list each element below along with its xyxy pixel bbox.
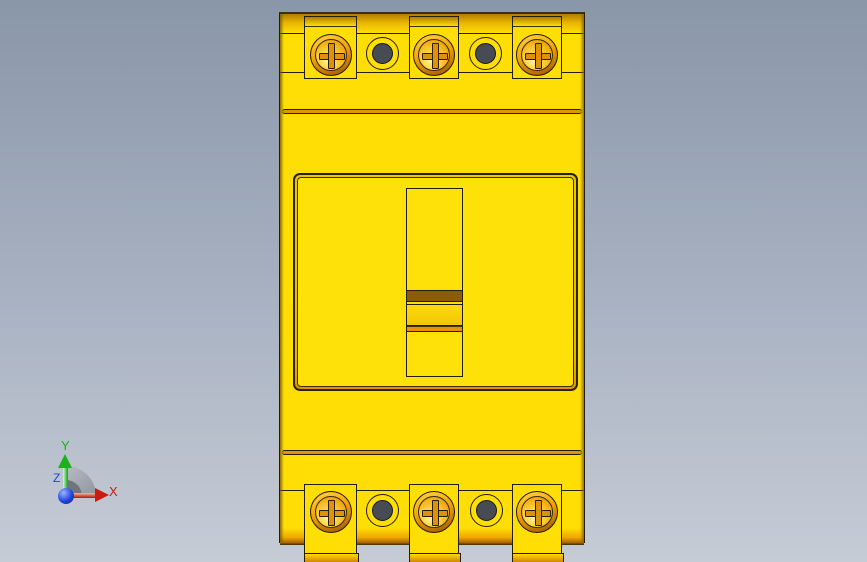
terminal-screw[interactable]: [310, 491, 352, 533]
phillips-slot-v: [432, 43, 439, 69]
toggle-slot[interactable]: [406, 188, 463, 377]
breaker-model[interactable]: [279, 12, 585, 543]
y-axis-label: Y: [61, 438, 70, 453]
block-bevel: [305, 17, 356, 27]
toggle-upper-bevel: [407, 290, 462, 302]
y-axis-arrowhead: [58, 454, 72, 468]
cover-step-top: [282, 109, 582, 114]
terminal-block-bottom-1[interactable]: [304, 484, 357, 555]
terminal-block-bottom-2[interactable]: [409, 484, 459, 555]
toggle-handle[interactable]: [407, 304, 462, 326]
phillips-slot-v: [328, 500, 335, 526]
block-bevel: [410, 17, 458, 27]
x-axis-arrowhead: [95, 488, 109, 502]
phillips-slot-v: [328, 43, 335, 69]
x-axis-label: X: [109, 484, 118, 499]
terminal-tab: [512, 553, 564, 562]
terminal-block-top-3[interactable]: [512, 16, 562, 79]
z-axis-label: Z: [53, 471, 60, 485]
terminal-tab: [304, 553, 359, 562]
terminal-screw[interactable]: [516, 491, 558, 533]
wire-hole: [476, 500, 497, 521]
phillips-slot-v: [432, 500, 439, 526]
terminal-screw[interactable]: [310, 34, 352, 76]
cover-step-bottom: [282, 450, 582, 455]
wire-hole: [372, 43, 393, 64]
cad-viewport: Y X Z: [0, 0, 867, 562]
left-edge-shade: [280, 14, 284, 542]
axis-triad: Y X Z: [48, 440, 126, 510]
phillips-slot-v: [535, 500, 542, 526]
terminal-screw[interactable]: [413, 34, 455, 76]
wire-hole: [372, 500, 393, 521]
phillips-slot-v: [535, 43, 542, 69]
block-bevel: [513, 17, 561, 27]
terminal-screw[interactable]: [516, 34, 558, 76]
toggle-lower-bevel: [407, 326, 462, 332]
terminal-screw[interactable]: [413, 491, 455, 533]
terminal-tab: [409, 553, 461, 562]
right-edge-shade: [580, 14, 584, 542]
terminal-block-bottom-3[interactable]: [512, 484, 562, 555]
terminal-block-top-1[interactable]: [304, 16, 357, 79]
wire-hole: [475, 43, 496, 64]
origin-sphere: [58, 488, 74, 504]
terminal-block-top-2[interactable]: [409, 16, 459, 79]
